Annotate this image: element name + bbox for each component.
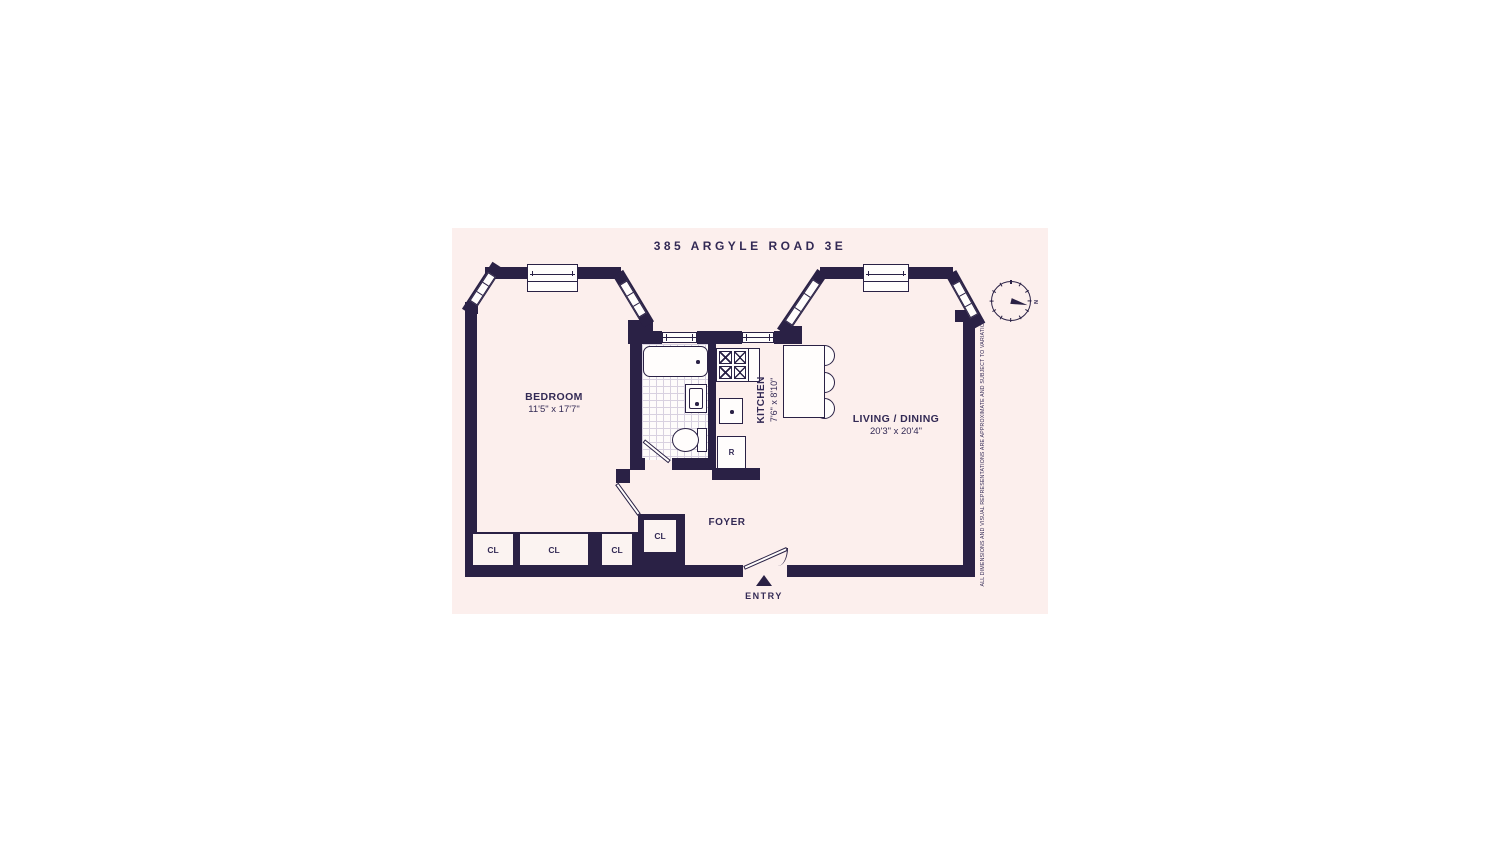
- stove-burner: [734, 366, 747, 379]
- refrigerator-label: R: [729, 448, 735, 457]
- window: [469, 272, 495, 305]
- bay-window: [613, 270, 654, 328]
- closet: CL: [520, 532, 588, 565]
- closet-label: CL: [548, 545, 559, 555]
- bedroom-door: [616, 483, 641, 516]
- kitchen-sink: [719, 398, 743, 424]
- stove-burner: [719, 366, 732, 379]
- compass-north-label: N: [1032, 300, 1038, 304]
- bay-window: [777, 269, 827, 335]
- toilet-bowl: [672, 428, 699, 452]
- wall: [672, 458, 716, 470]
- refrigerator: R: [717, 436, 746, 469]
- room-label-living-dining: LIVING / DINING 20'3" x 20'4": [836, 413, 956, 438]
- bathroom-sink-basin: [689, 388, 703, 409]
- bathtub-drain: [696, 360, 700, 364]
- window: [742, 332, 774, 343]
- living-dining-name: LIVING / DINING: [836, 413, 956, 426]
- bathroom-sink: [685, 384, 707, 413]
- room-label-bedroom: BEDROOM 11'5" x 17'7": [492, 391, 616, 416]
- wall: [712, 468, 760, 480]
- wall: [630, 458, 645, 470]
- window: [784, 279, 819, 325]
- stove-burner: [719, 351, 732, 364]
- bedroom-dims: 11'5" x 17'7": [492, 404, 616, 416]
- wall: [708, 344, 716, 470]
- closet: CL: [644, 518, 676, 552]
- wall: [630, 331, 642, 470]
- wall: [787, 565, 975, 577]
- window: [863, 264, 909, 292]
- bedroom-name: BEDROOM: [492, 391, 616, 404]
- closet: CL: [602, 532, 632, 565]
- kitchen-dims: 7'6" x 8'10": [769, 355, 780, 445]
- closet-label: CL: [487, 545, 498, 555]
- entry-label: ENTRY: [734, 591, 794, 601]
- wall: [820, 267, 865, 279]
- bay-window: [462, 262, 503, 316]
- window: [527, 264, 578, 292]
- wall: [697, 331, 742, 344]
- floor-plan-panel: 385 ARGYLE ROAD 3E R: [452, 228, 1048, 614]
- bathroom-sink-drain: [695, 402, 699, 406]
- entry-arrow: [756, 575, 772, 586]
- wall: [616, 469, 630, 483]
- floor-plan-page: 385 ARGYLE ROAD 3E R: [0, 0, 1500, 844]
- peninsula-counter: [783, 345, 825, 418]
- kitchen-sink-drain: [730, 410, 734, 414]
- room-label-kitchen: KITCHEN 7'6" x 8'10": [756, 355, 780, 445]
- disclaimer-text: ALL DIMENSIONS AND VISUAL REPRESENTATION…: [980, 328, 986, 578]
- wall: [963, 316, 975, 577]
- stove: [716, 348, 749, 382]
- stove-burner: [734, 351, 747, 364]
- entry-door-swing-arc: [778, 548, 788, 566]
- room-label-foyer: FOYER: [697, 517, 757, 528]
- compass-needle: [1010, 298, 1028, 308]
- living-dining-dims: 20'3" x 20'4": [836, 426, 956, 438]
- closet-label: CL: [611, 545, 622, 555]
- page-title: 385 ARGYLE ROAD 3E: [452, 239, 1048, 253]
- closet: CL: [473, 532, 513, 565]
- compass-icon: N: [991, 281, 1031, 321]
- window: [620, 280, 647, 317]
- closet-label: CL: [654, 531, 665, 541]
- kitchen-name: KITCHEN: [756, 355, 769, 445]
- window: [662, 332, 697, 343]
- bathtub: [643, 346, 708, 377]
